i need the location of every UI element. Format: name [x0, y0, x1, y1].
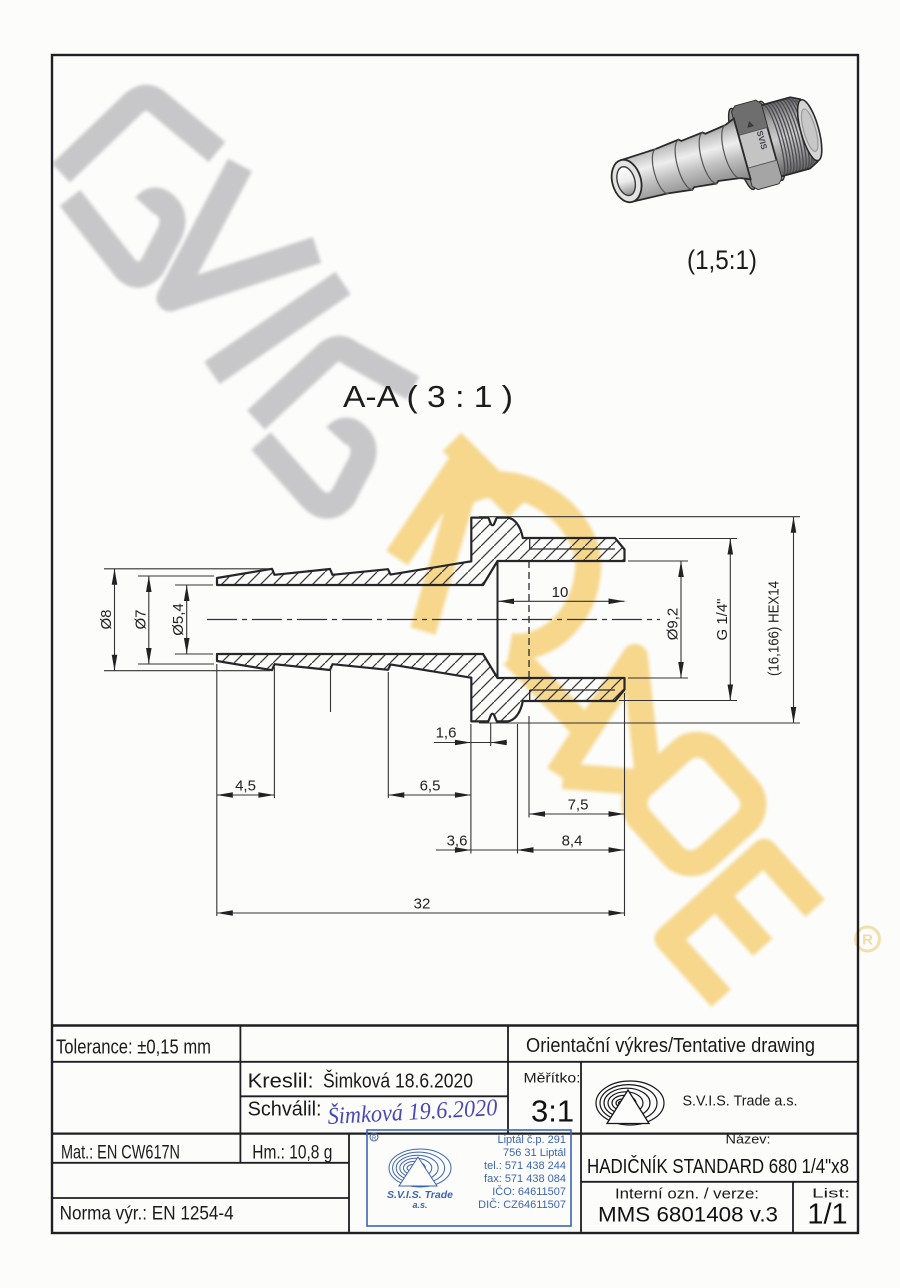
svg-text:(1,5:1): (1,5:1) [687, 245, 757, 275]
svg-text:10: 10 [552, 584, 569, 601]
svg-text:756 31 Liptál: 756 31 Liptál [503, 1147, 566, 1159]
svg-text:fax: 571 438 084: fax: 571 438 084 [484, 1173, 566, 1185]
svg-text:Orientační výkres/Tentative dr: Orientační výkres/Tentative drawing [526, 1035, 815, 1057]
svg-text:Ø8: Ø8 [98, 609, 115, 629]
svg-text:Liptál č.p. 291: Liptál č.p. 291 [498, 1134, 567, 1146]
svg-text:Interní ozn. / verze:: Interní ozn. / verze: [615, 1186, 759, 1203]
svg-text:1,6: 1,6 [436, 725, 457, 742]
svg-text:Mat.: EN CW617N: Mat.: EN CW617N [61, 1142, 180, 1164]
svg-text:Měřítko:: Měřítko: [524, 1071, 581, 1086]
svg-text:7,5: 7,5 [568, 796, 589, 813]
svg-text:Šimková 18.6.2020: Šimková 18.6.2020 [323, 1069, 473, 1092]
svg-text:Ø5,4: Ø5,4 [170, 603, 187, 636]
svg-text:3,6: 3,6 [447, 832, 468, 849]
svg-text:Hm.: 10,8 g: Hm.: 10,8 g [252, 1142, 332, 1164]
svg-text:1/1: 1/1 [807, 1199, 847, 1231]
svg-text:MMS 6801408 v.3: MMS 6801408 v.3 [598, 1204, 778, 1227]
svg-text:6,5: 6,5 [420, 777, 441, 794]
svg-text:IČO: 64611507: IČO: 64611507 [492, 1185, 566, 1198]
svg-text:Schválil:: Schválil: [248, 1099, 322, 1121]
svg-text:Tolerance: ±0,15 mm: Tolerance: ±0,15 mm [56, 1037, 211, 1059]
svg-text:HADIČNÍK STANDARD 680 1/4"x8: HADIČNÍK STANDARD 680 1/4"x8 [587, 1155, 849, 1178]
svg-text:S.V.I.S. Trade a.s.: S.V.I.S. Trade a.s. [683, 1093, 798, 1110]
svg-text:DIČ: CZ64611507: DIČ: CZ64611507 [478, 1198, 566, 1211]
svg-text:32: 32 [414, 895, 431, 912]
svg-text:(16,166) HEX14: (16,166) HEX14 [766, 581, 783, 676]
svg-text:R: R [372, 1136, 377, 1142]
svg-text:R: R [862, 932, 873, 949]
svg-text:tel.: 571 438 244: tel.: 571 438 244 [484, 1160, 566, 1172]
svg-text:Ø7: Ø7 [132, 609, 149, 629]
svg-text:A-A ( 3 : 1 ): A-A ( 3 : 1 ) [343, 379, 513, 414]
svg-text:a.s.: a.s. [412, 1200, 427, 1210]
svg-text:8,4: 8,4 [562, 832, 583, 849]
svg-text:4,5: 4,5 [235, 777, 256, 794]
svg-text:Norma výr.: EN 1254-4: Norma výr.: EN 1254-4 [60, 1203, 234, 1225]
svg-text:3:1: 3:1 [531, 1094, 574, 1129]
svg-text:Ø9,2: Ø9,2 [664, 608, 681, 641]
svg-text:Název:: Název: [726, 1132, 771, 1147]
svg-text:Kreslil:: Kreslil: [248, 1070, 314, 1092]
svg-text:G 1/4": G 1/4" [714, 598, 731, 640]
